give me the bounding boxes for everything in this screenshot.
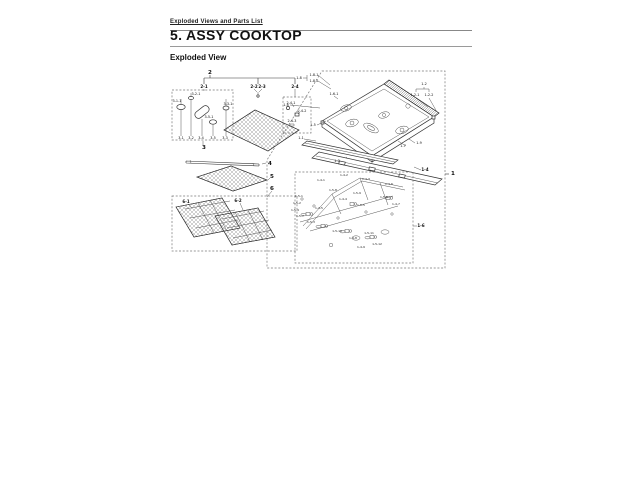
part-callout-2-3: 2-3 [258,84,265,89]
part-callout-1-4-5: 1-4-5 [315,206,323,210]
part-callout-1-8-1: 1-8-1 [310,73,319,77]
part-callout-1-5-8: 1-5-8 [329,188,337,192]
part-callout-1-5-12: 1-5-12 [372,242,382,246]
part-callout-3-1: 3-1 [178,136,184,140]
part-callout-1-4-7: 1-4-7 [392,202,400,206]
part-callout-3-2: 3-2 [188,136,194,140]
part-callout-1-5-2: 1-5-2 [293,201,301,205]
part-callout-1-3: 1-3 [334,159,340,163]
knob-part [188,93,193,136]
part-callout-1-5-7: 1-5-7 [296,214,304,218]
exploded-view-diagram: 2345612-12-22-32-46-16-21-41-63-13-23-43… [0,0,640,480]
part-callout-1-8: 1-8 [296,76,302,80]
knob-part [177,99,185,136]
part-callout-1-5-4: 1-5-4 [291,208,299,212]
part-callout-2-4-3: 2-4-3 [288,119,297,123]
part-callout-1-9: 1-9 [416,141,422,145]
part-callout-1-6: 1-6 [417,223,424,228]
part-callout-1-5-5: 1-5-5 [357,203,365,207]
part-callout-6-1: 6-1 [182,199,189,204]
packing-part [224,110,299,151]
part-callout-1-5-3: 1-5-3 [307,220,315,224]
part-callout-1-4-2: 1-4-2 [340,173,348,177]
part-callout-3-5: 3-5 [210,136,216,140]
manual-page: Exploded Views and Parts List 5. ASSY CO… [0,0,640,480]
valve-part [350,203,357,206]
part-callout-2-4: 2-4 [291,84,298,89]
part-callout-2: 2 [208,70,212,76]
part-callout-1-5-1: 1-5-1 [295,194,303,198]
part-callout-3: 3 [202,145,206,151]
manifold-box [295,172,413,263]
part-callout-1-4-4: 1-4-4 [339,197,347,201]
part-callout-6: 6 [270,186,274,192]
grate-box [172,196,297,251]
part-callout-1-1: 1-1 [298,136,304,140]
part-callout-1-4: 1-4 [421,167,428,172]
part-callout-5: 5 [270,174,274,180]
part-callout-1-4-3: 1-4-3 [362,177,370,181]
knob-part [209,120,216,136]
part-callout-1-4-8: 1-4-8 [349,236,357,240]
part-callout-1-2-2: 1-2-2 [425,93,434,97]
part-callout-1-4-1: 1-4-1 [317,178,325,182]
valve-part [316,225,328,228]
part-callout-2-4-2: 2-4-2 [298,109,307,113]
part-callout-1-5-9: 1-5-9 [353,191,361,195]
part-callout-2-1: 2-1 [200,84,207,89]
part-callout-3-4: 3-4 [198,136,204,140]
part-callout-4: 4 [268,161,272,167]
part-callout-3-5-1: 3-5-1 [205,115,214,119]
part-callout-1-2-1: 1-2-1 [411,93,420,97]
part-callout-2-2: 2-2 [250,84,257,89]
part-callout-1-7: 1-7 [400,144,406,148]
part-callout-1-5-6: 1-5-6 [380,195,388,199]
part-callout-1-5: 1-5 [310,123,316,127]
knob-part [193,104,210,136]
part-callout-1-5-10: 1-5-10 [332,229,342,233]
part-callout-1: 1 [451,171,455,177]
part-callout-6-2: 6-2 [234,198,241,203]
valve-part [365,236,377,239]
part-callout-1-8-2: 1-8-2 [310,79,319,83]
part-callout-3-3-1: 3-3-1 [224,102,233,106]
part-callout-3-2-1: 3-2-1 [192,92,201,96]
part-callout-1-6: 1-6 [283,103,289,107]
part-callout-1-4-9: 1-4-9 [357,245,365,249]
part-callout-3-3: 3-3 [222,136,228,140]
part-callout-1-4-6: 1-4-6 [385,182,393,186]
part-callout-1-6-1: 1-6-1 [330,92,339,96]
part-callout-3-1-1: 3-1-1 [173,99,182,103]
griddle-part [197,166,272,197]
rod-part [186,160,266,166]
part-callout-1-5-11: 1-5-11 [364,231,374,235]
part-callout-1-2: 1-2 [421,82,427,86]
